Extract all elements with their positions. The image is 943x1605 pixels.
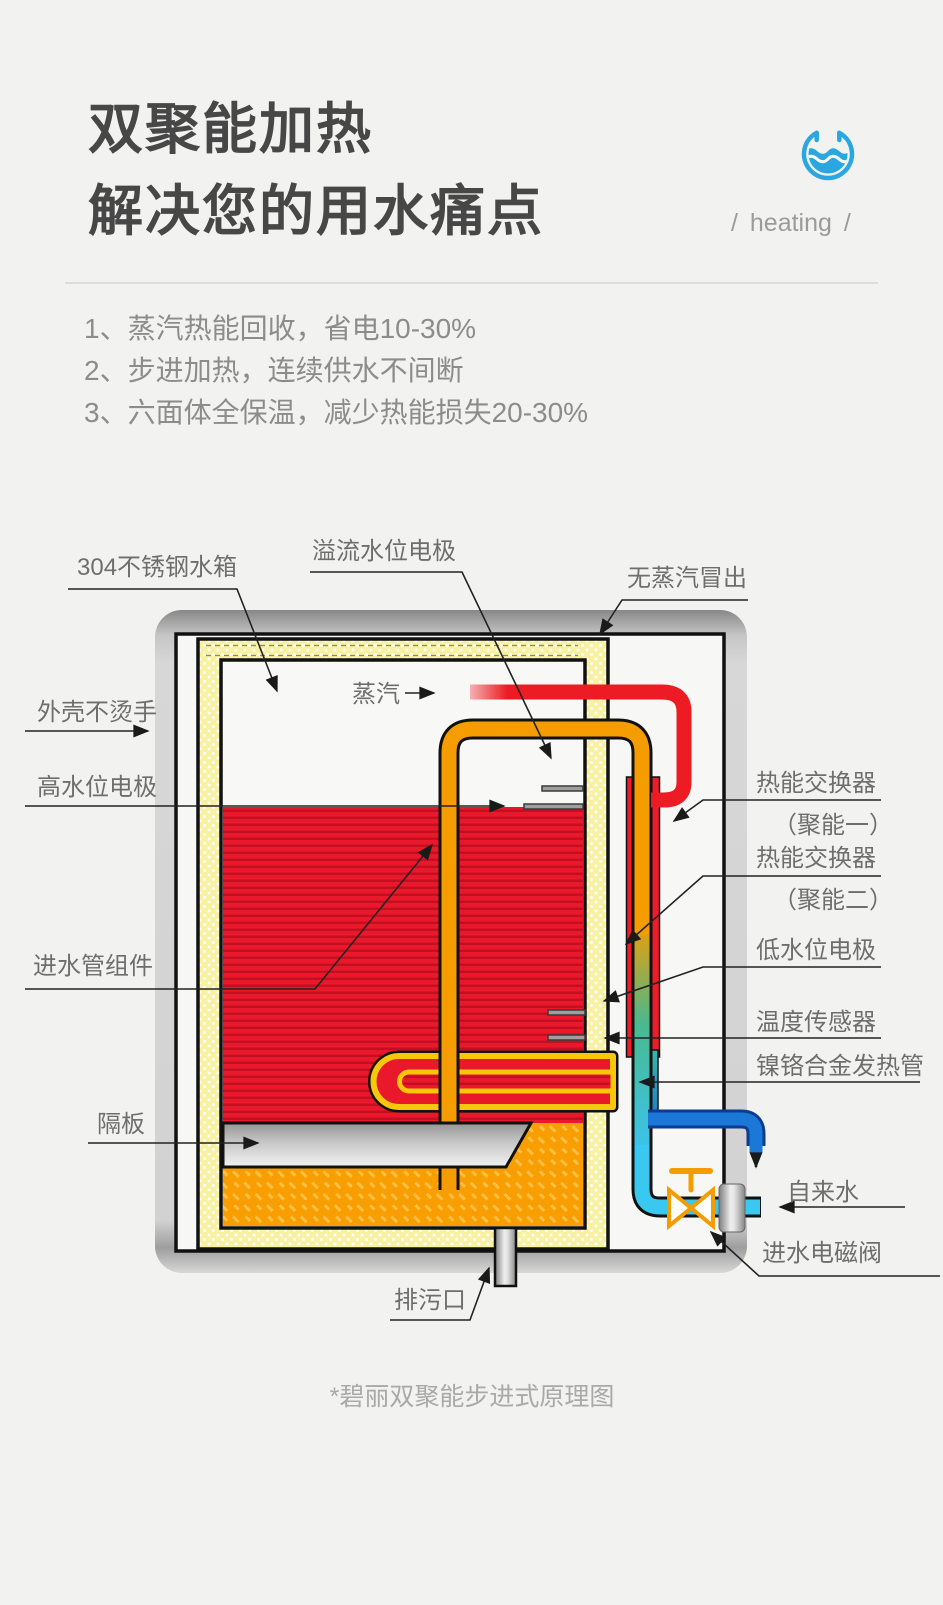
label-no-steam: 无蒸汽冒出 (627, 565, 747, 592)
drain-pipe (495, 1228, 516, 1286)
label-inlet-solenoid-valve: 进水电磁阀 (762, 1240, 882, 1267)
label-heating-tube: 镍铬合金发热管 (756, 1053, 924, 1080)
label-tap-water: 自来水 (787, 1179, 859, 1206)
overflow-electrode-rod (542, 786, 583, 791)
label-heat-exchanger-2-sub: （聚能二） (773, 887, 893, 914)
baffle-plate (223, 1123, 531, 1167)
label-cool-shell: 外壳不烫手 (37, 699, 157, 726)
label-inlet-pipe-assembly: 进水管组件 (33, 953, 153, 980)
label-low-level-electrode: 低水位电极 (756, 937, 876, 964)
label-overflow-electrode: 溢流水位电极 (312, 538, 456, 565)
label-high-level-electrode: 高水位电极 (37, 774, 157, 801)
label-baffle: 隔板 (97, 1111, 145, 1138)
diagram-caption: *碧丽双聚能步进式原理图 (330, 1383, 615, 1411)
label-heat-exchanger-2: 热能交换器 (756, 845, 876, 872)
label-tank: 304不锈钢水箱 (77, 554, 237, 581)
label-steam: 蒸汽 (352, 681, 400, 708)
label-heat-exchanger-1-sub: （聚能一） (773, 812, 893, 839)
heating-element (374, 1056, 613, 1107)
label-drain-outlet: 排污口 (394, 1287, 466, 1314)
label-temp-sensor: 温度传感器 (756, 1009, 876, 1036)
low-level-electrode-rod (548, 1010, 585, 1015)
temp-sensor-rod (548, 1035, 585, 1040)
high-level-electrode-rod (524, 804, 583, 809)
diagram: 304不锈钢水箱 溢流水位电极 无蒸汽冒出 蒸汽 外壳不烫手 高水位电极 进水管… (0, 0, 943, 1605)
solenoid-valve-body (719, 1184, 745, 1232)
label-heat-exchanger-1: 热能交换器 (756, 770, 876, 797)
